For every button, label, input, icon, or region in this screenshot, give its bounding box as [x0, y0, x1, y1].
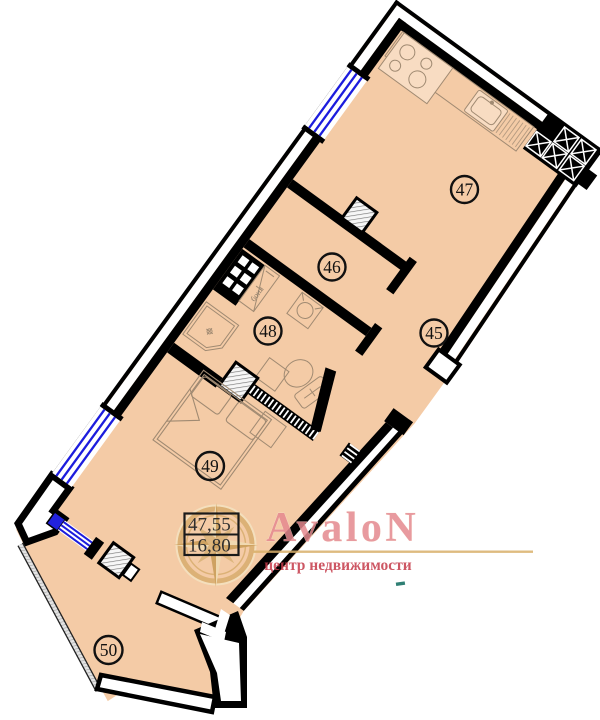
- svg-text:50: 50: [100, 640, 118, 660]
- svg-text:45: 45: [425, 323, 443, 343]
- svg-text:48: 48: [259, 321, 277, 341]
- svg-text:47: 47: [456, 180, 474, 200]
- svg-text:47,55: 47,55: [188, 515, 231, 536]
- svg-text:AvaloN: AvaloN: [266, 505, 419, 551]
- svg-text:49: 49: [201, 456, 219, 476]
- svg-text:16,80: 16,80: [188, 536, 231, 557]
- svg-text:центр недвижимости: центр недвижимости: [264, 557, 412, 574]
- svg-text:46: 46: [323, 257, 341, 277]
